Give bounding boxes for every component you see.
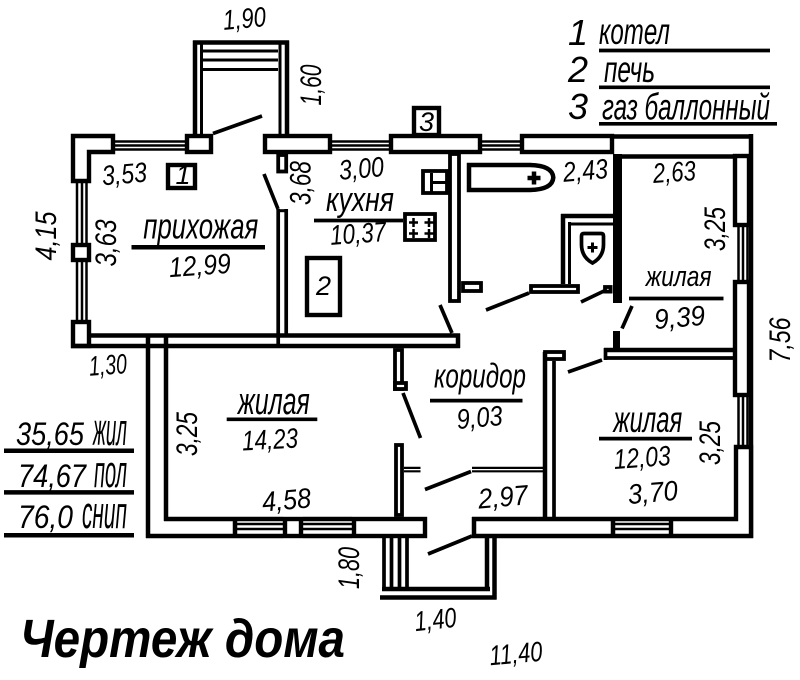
svg-text:3: 3 bbox=[419, 107, 434, 137]
svg-text:2: 2 bbox=[315, 271, 331, 301]
svg-text:Чертеж дома: Чертеж дома bbox=[20, 609, 345, 669]
svg-text:газ баллонный: газ баллонный bbox=[602, 87, 770, 128]
svg-text:печь: печь bbox=[604, 49, 655, 90]
svg-text:жилая: жилая bbox=[644, 261, 712, 293]
svg-text:10,37: 10,37 bbox=[329, 216, 388, 251]
svg-text:3,53: 3,53 bbox=[101, 157, 149, 192]
svg-text:3,25: 3,25 bbox=[699, 207, 732, 251]
svg-text:7,56: 7,56 bbox=[764, 317, 797, 362]
svg-text:3,70: 3,70 bbox=[626, 475, 679, 510]
svg-text:3,63: 3,63 bbox=[90, 219, 123, 266]
svg-text:14,23: 14,23 bbox=[241, 423, 299, 457]
svg-text:2,63: 2,63 bbox=[651, 155, 697, 189]
svg-text:1: 1 bbox=[568, 12, 588, 53]
svg-text:3,25: 3,25 bbox=[171, 412, 204, 456]
svg-text:котел: котел bbox=[599, 11, 670, 52]
svg-text:1,80: 1,80 bbox=[333, 547, 366, 589]
svg-text:4,58: 4,58 bbox=[261, 482, 313, 517]
svg-text:2,97: 2,97 bbox=[476, 479, 531, 514]
svg-text:жилая: жилая bbox=[236, 381, 309, 423]
svg-text:коридор: коридор bbox=[434, 358, 526, 396]
svg-text:1,40: 1,40 bbox=[413, 602, 458, 637]
svg-text:12,03: 12,03 bbox=[613, 440, 672, 475]
svg-text:3: 3 bbox=[568, 86, 588, 127]
svg-text:3,25: 3,25 bbox=[694, 421, 727, 465]
svg-text:11,40: 11,40 bbox=[488, 636, 544, 672]
svg-text:прихожая: прихожая bbox=[143, 206, 258, 247]
svg-text:2: 2 bbox=[567, 49, 588, 90]
svg-text:1,30: 1,30 bbox=[88, 348, 128, 382]
svg-text:2,43: 2,43 bbox=[561, 153, 610, 188]
svg-text:12,99: 12,99 bbox=[168, 248, 232, 283]
svg-text:3,68: 3,68 bbox=[285, 161, 318, 205]
svg-text:9,03: 9,03 bbox=[455, 400, 504, 435]
svg-text:кухня: кухня bbox=[326, 181, 394, 219]
svg-text:4,15: 4,15 bbox=[30, 211, 63, 260]
svg-text:жилая: жилая bbox=[612, 399, 682, 440]
svg-text:9,39: 9,39 bbox=[653, 300, 707, 335]
svg-text:1: 1 bbox=[175, 160, 190, 190]
svg-text:1,90: 1,90 bbox=[222, 1, 268, 36]
svg-text:1,60: 1,60 bbox=[295, 64, 328, 105]
